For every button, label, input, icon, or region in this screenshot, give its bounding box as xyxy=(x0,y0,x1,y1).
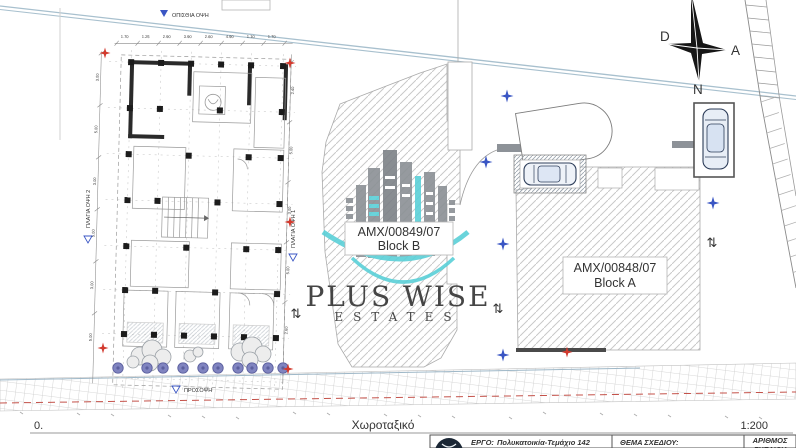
right-boundary-wall xyxy=(745,0,796,288)
block-a-permit: AMX/00848/07 xyxy=(574,261,657,275)
car-icon-2 xyxy=(703,109,728,169)
dimension-value: 5.00 xyxy=(288,146,293,155)
column-marker xyxy=(128,59,134,65)
column-marker xyxy=(211,333,217,339)
column-marker xyxy=(157,106,163,112)
staircase xyxy=(162,197,210,238)
block-b-label: AMX/00849/07 Block B xyxy=(345,222,453,255)
column-marker xyxy=(275,247,281,253)
column-marker xyxy=(122,287,128,293)
column-marker xyxy=(152,288,158,294)
watermark-name: PLUS WISE xyxy=(305,280,490,313)
column-marker xyxy=(274,291,280,297)
survey-star-red-icon xyxy=(98,343,109,354)
survey-star-blue-icon xyxy=(501,90,514,103)
drawing-scale: 1:200 xyxy=(740,420,768,432)
tree-cloud-mid xyxy=(184,347,203,362)
dimension-value: 3.00 xyxy=(92,177,97,186)
drawing-footer: 0. Χωροταξικό 1:200 xyxy=(30,418,793,433)
survey-star-blue-icon xyxy=(497,349,510,362)
side2-elevation-label: ΠΛΑΓΙΑ ΟΨΗ 2 xyxy=(86,190,92,228)
column-marker xyxy=(217,107,223,113)
column-marker xyxy=(214,199,220,205)
boundary-wall-segment xyxy=(497,144,523,152)
column-marker xyxy=(279,109,285,115)
dimension-value: 1.10 xyxy=(247,34,256,39)
column-marker xyxy=(273,335,279,341)
two-way-arrow-icon: ⇅ xyxy=(707,235,718,250)
number-label-line1: ΑΡΙΘΜΟΣ xyxy=(752,436,788,445)
block-b-permit: AMX/00849/07 xyxy=(358,225,441,239)
column-marker xyxy=(151,332,157,338)
column-marker xyxy=(218,61,224,67)
two-way-arrow-icon: ⇅ xyxy=(493,301,504,316)
block-b-name: Block B xyxy=(378,239,420,253)
site-plan-canvas: 1.701.252.903.902.604.901.101.703.005.00… xyxy=(0,0,796,448)
floor-plan-detail: 1.701.252.903.902.604.901.101.703.005.00… xyxy=(87,29,297,392)
column-marker xyxy=(276,201,282,207)
car-icon xyxy=(524,163,576,185)
parking-stall-horizontal xyxy=(514,155,586,193)
column-marker xyxy=(158,60,164,66)
site-plan-drawing: 1.701.252.903.902.604.901.101.703.005.00… xyxy=(0,0,796,448)
dimension-value: 2.90 xyxy=(163,34,172,39)
survey-star-blue-icon xyxy=(707,197,720,210)
block-a-name: Block A xyxy=(594,276,636,290)
dimension-value: 1.70 xyxy=(121,34,130,39)
project-value: Πολυκατοικία-Τεμάχιο 142 xyxy=(497,438,591,447)
rear-elevation-icon xyxy=(160,10,168,17)
column-marker xyxy=(280,63,286,69)
project-label: ΕΡΓΟ: xyxy=(471,438,494,447)
column-marker xyxy=(243,246,249,252)
column-marker xyxy=(183,245,189,251)
columns xyxy=(121,59,286,341)
dimension-value: 3.00 xyxy=(89,281,94,290)
column-marker xyxy=(278,155,284,161)
column-marker xyxy=(127,105,133,111)
door-arcs xyxy=(234,159,278,306)
front-elevation-label: ΠΡΟΣΟΨΗ xyxy=(184,388,212,394)
block-a-label: AMX/00848/07 Block A xyxy=(563,257,667,294)
dimension-value: 3.90 xyxy=(184,34,193,39)
dimension-value: 5.00 xyxy=(88,333,93,342)
column-marker xyxy=(248,62,254,68)
dimension-labels: 1.701.252.903.902.604.901.101.703.005.00… xyxy=(88,29,297,346)
dimension-value: 1.70 xyxy=(268,34,277,39)
dimension-value: 1.25 xyxy=(142,34,151,39)
origin-label: 0. xyxy=(34,420,43,432)
dimension-value: 2.60 xyxy=(205,34,214,39)
dimension-value: 5.00 xyxy=(93,125,98,134)
column-marker xyxy=(121,331,127,337)
column-marker xyxy=(154,198,160,204)
column-marker xyxy=(246,154,252,160)
rear-elevation-label: ΟΠΙΣΘΙΑ ΟΨΗ xyxy=(172,13,209,19)
watermark-tagline: ESTATES xyxy=(334,310,461,324)
dimension-value: 5.00 xyxy=(285,266,290,275)
subject-label: ΘΕΜΑ ΣΧΕΔΙΟΥ: xyxy=(620,438,679,447)
two-way-arrow-icon: ⇅ xyxy=(291,306,302,321)
room-outlines xyxy=(130,70,286,290)
column-marker xyxy=(126,151,132,157)
column-marker xyxy=(186,153,192,159)
column-marker xyxy=(124,197,130,203)
column-marker xyxy=(212,289,218,295)
driveway-curve xyxy=(460,150,497,205)
survey-star-blue-icon xyxy=(480,156,493,169)
drawing-title: Χωροταξικό xyxy=(352,418,415,432)
compass-west-label: D xyxy=(660,29,670,44)
dimension-value: 2.60 xyxy=(284,326,289,335)
column-marker xyxy=(123,243,129,249)
compass-east-label: A xyxy=(731,43,740,58)
parking-stall-vertical xyxy=(694,103,734,177)
dimension-value: 3.00 xyxy=(95,73,100,82)
column-marker xyxy=(181,333,187,339)
dimension-value: 2.40 xyxy=(290,86,295,95)
side1-elevation-icon xyxy=(289,254,297,261)
survey-star-blue-icon xyxy=(497,238,510,251)
compass-south-label: N xyxy=(693,82,703,97)
dimension-value: 4.90 xyxy=(226,34,235,39)
side1-elevation-label: ΠΛΑΓΙΑ ΟΨΗ 1 xyxy=(291,210,297,248)
block-a-footprint xyxy=(460,141,714,352)
column-marker xyxy=(188,61,194,67)
title-block: ΕΡΓΟ: Πολυκατοικία-Τεμάχιο 142 ΘΕΜΑ ΣΧΕΔ… xyxy=(430,435,796,448)
